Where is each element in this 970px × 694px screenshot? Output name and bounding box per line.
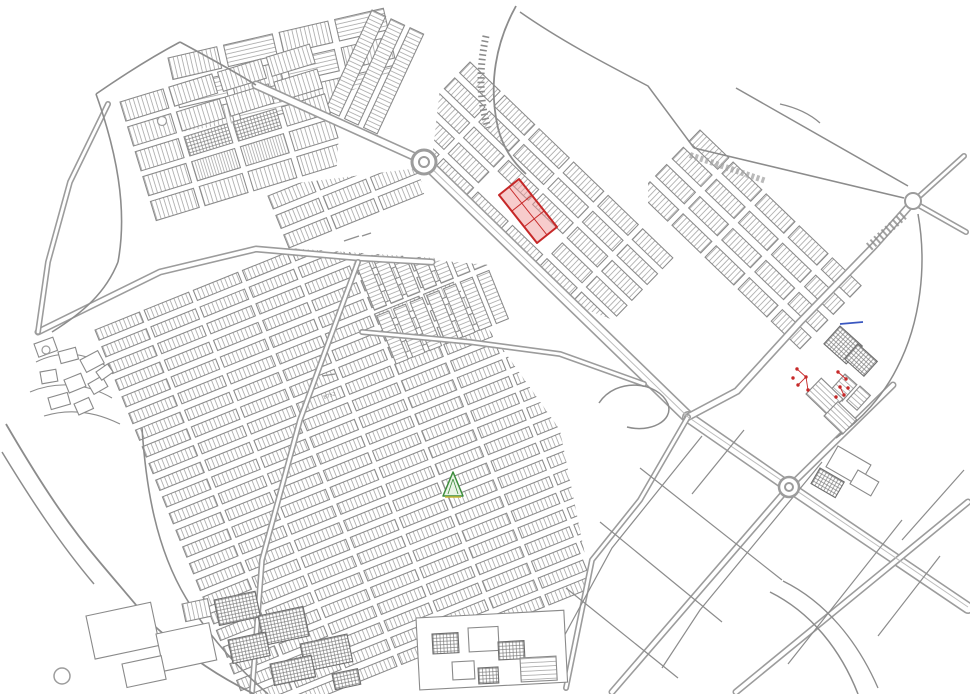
road-northeast-spur-a: [913, 156, 964, 202]
industrial-shed-a: [86, 602, 160, 659]
campus-building-d: [520, 656, 557, 682]
coast-curve-b: [2, 452, 94, 584]
campus-building-c: [498, 641, 525, 660]
blue-segment-marker: [840, 322, 863, 324]
illegible-street-label-a: [344, 236, 359, 241]
roundabout-main: [412, 150, 436, 174]
coast-curve-a: [6, 424, 150, 622]
industrial-strip: [182, 599, 211, 622]
layer-districts: [95, 8, 861, 694]
village-block-4: [40, 369, 58, 384]
district-north-mid: [268, 141, 426, 248]
small-circle-northwest: [158, 117, 167, 126]
right-edge-curve: [836, 214, 922, 438]
roundabout-southeast: [779, 477, 799, 497]
road-interchange-south-road: [566, 417, 688, 688]
se-ramp-b: [783, 581, 878, 688]
se-parcel-line-7: [788, 520, 902, 664]
red-survey-points-west: [791, 367, 809, 391]
screenshot-root: 8752: [0, 0, 970, 694]
small-circle-industrial: [54, 668, 70, 684]
east-district-north-edge: [520, 12, 694, 148]
industrial-shed-b: [156, 623, 217, 671]
se-parcel-line-3: [600, 522, 722, 622]
roundabout-east: [905, 193, 921, 209]
road-northwest-inner-road: [38, 104, 108, 332]
industrial-shed-c: [122, 656, 166, 688]
campus-building-e: [452, 661, 475, 680]
top-left-curve-b: [96, 42, 180, 94]
cadastral-map[interactable]: 8752: [0, 0, 970, 694]
district-east-far: [639, 130, 861, 349]
village-block-5: [64, 373, 86, 393]
illegible-street-label-b: [362, 233, 371, 236]
interchange-ramp: [599, 385, 669, 428]
red-link-2: [806, 377, 808, 390]
village-block-7: [48, 392, 71, 409]
road-northeast-spur-b: [913, 202, 966, 232]
top-right-branch: [780, 104, 820, 123]
village-block-2: [58, 347, 78, 363]
top-right-road-b: [736, 88, 908, 186]
road-southeast-cross-avenue: [612, 385, 893, 692]
campus-building-f: [478, 667, 499, 684]
small-circle-village: [42, 346, 50, 354]
village-block-6: [88, 376, 108, 394]
campus-building-b: [468, 626, 499, 652]
campus-building-a: [432, 633, 459, 654]
